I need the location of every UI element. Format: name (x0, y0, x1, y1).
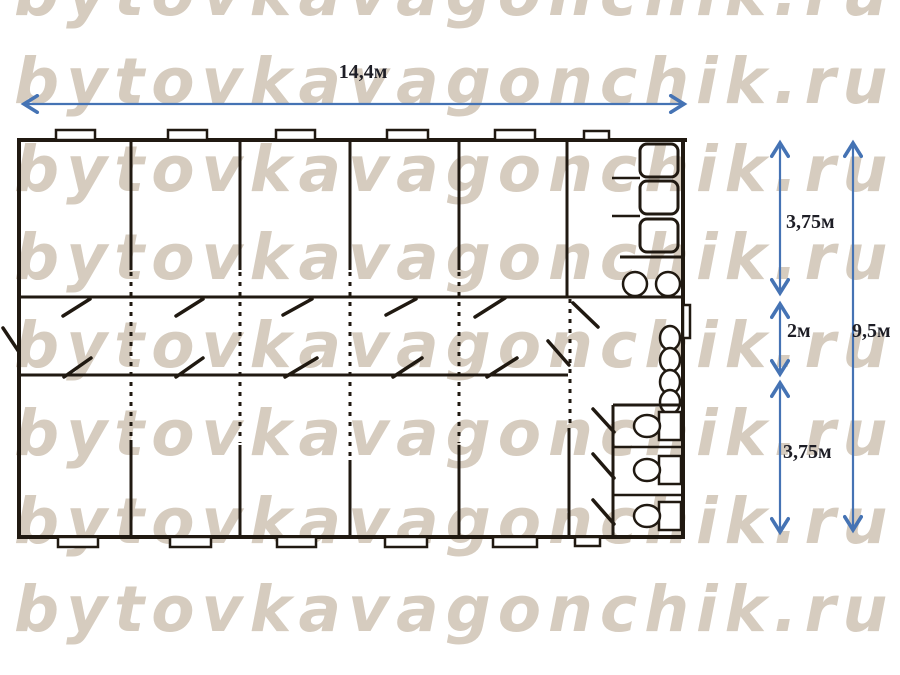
dim-corridor-label: 2м (787, 321, 811, 341)
shower-stalls (612, 144, 683, 257)
building-outline (19, 140, 685, 537)
washbasins (623, 272, 680, 296)
corridor-sinks (660, 326, 680, 414)
toilets (634, 412, 681, 530)
dim-total-depth-label: 9,5м (852, 321, 891, 341)
dim-top-section-label: 3,75м (786, 212, 835, 232)
door-swings (3, 298, 614, 524)
dimension-arrows (24, 104, 853, 532)
floor-plan-drawing (0, 0, 900, 675)
room-partitions (131, 140, 569, 537)
right-exit-door (683, 305, 690, 338)
dim-bottom-section-label: 3,75м (783, 442, 832, 462)
floor-plan-page: bytovkavagonchik.ru bytovkavagonchik.ru … (0, 0, 900, 675)
dim-width-label: 14,4м (318, 62, 408, 82)
